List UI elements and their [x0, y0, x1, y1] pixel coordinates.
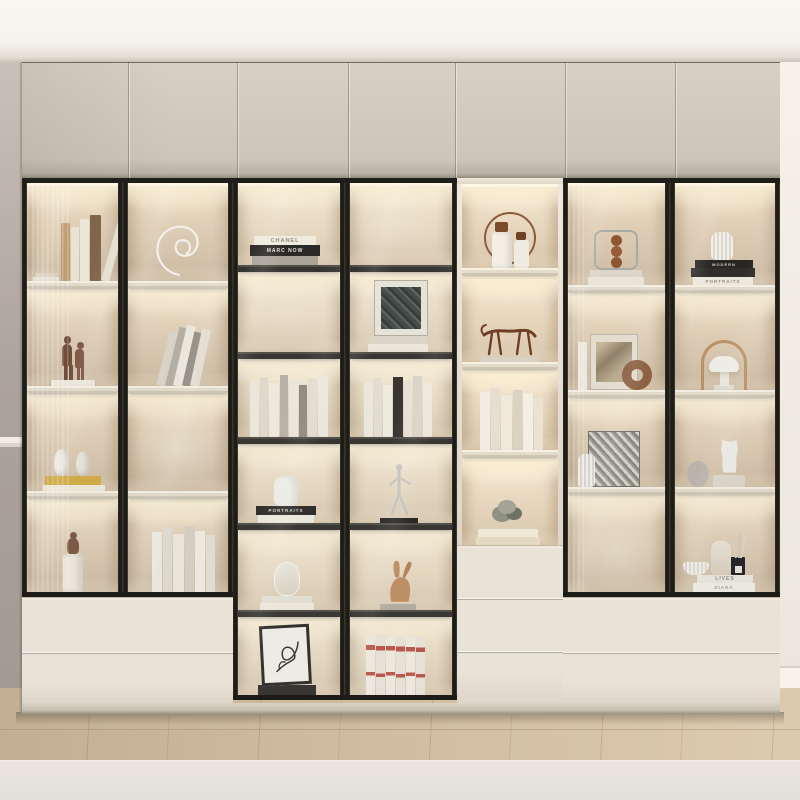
door-stile-left [670, 178, 675, 597]
door-rail-bottom [22, 592, 123, 597]
drawer-unit-right [563, 597, 780, 703]
scene-root: MARC NOWCHANELPORTRAITSPORTRAITSMODERNDI… [0, 0, 800, 800]
column-3: MARC NOWCHANELPORTRAITS [233, 178, 345, 700]
upper-cabinet-seam [348, 63, 350, 178]
led-strip-glow [462, 275, 558, 301]
glass-pane [27, 183, 118, 592]
interior-photo-bookcase-wall: MARC NOWCHANELPORTRAITSPORTRAITSMODERNDI… [0, 0, 800, 800]
door-rail-bottom [123, 592, 233, 597]
drawer-seam [457, 651, 563, 654]
drawer-seam [563, 652, 780, 655]
drawer-unit-left [22, 597, 233, 703]
book [501, 395, 512, 450]
door-rail-top [345, 178, 457, 183]
glass-pane [568, 183, 665, 592]
drawer-seam [22, 652, 233, 655]
open-edge-top [457, 178, 563, 184]
upper-cabinets [22, 62, 780, 178]
door-rail-top [233, 178, 345, 183]
door-stile-left [345, 178, 350, 700]
column-6 [563, 178, 670, 597]
column-5-open-compartment-4 [462, 457, 558, 545]
vase-white [492, 232, 512, 268]
upper-cabinet-seam [565, 63, 567, 178]
glass-pane [128, 183, 228, 592]
book [523, 393, 533, 450]
book [513, 390, 522, 450]
door-stile-right [775, 178, 780, 597]
book-flat [476, 537, 540, 545]
vase-lid-brown [495, 222, 508, 232]
column-4 [345, 178, 457, 700]
book-flat [478, 529, 538, 537]
drawer-seam [457, 598, 563, 601]
column-5-open-shelf [462, 268, 558, 275]
door-rail-top [123, 178, 233, 183]
glass-pane [238, 183, 340, 695]
glass-pane [350, 183, 452, 695]
door-rail-bottom [345, 695, 457, 700]
book [480, 392, 490, 450]
door-rail-top [670, 178, 780, 183]
door-stile-left [563, 178, 568, 597]
upper-cabinet-seam [237, 63, 239, 178]
column-5-open-shelf [462, 362, 558, 369]
door-rail-bottom [233, 695, 345, 700]
door-stile-left [233, 178, 238, 700]
column-7: PORTRAITSMODERNDIANALIVES [670, 178, 780, 597]
upper-cabinet-seam [128, 63, 130, 178]
door-rail-bottom [670, 592, 780, 597]
glass-pane [675, 183, 775, 592]
book-flat [480, 522, 536, 529]
vase-white [514, 240, 529, 268]
column-2 [123, 178, 233, 597]
column-5-open-shelf [462, 450, 558, 457]
cabinet-plinth [22, 703, 780, 714]
column-5-open-compartment-3 [462, 369, 558, 450]
open-edge-left [457, 178, 462, 545]
book [491, 388, 500, 450]
wall-right-baseboard [780, 666, 800, 690]
upper-cabinet-seam [675, 63, 677, 178]
door-rail-top [22, 178, 123, 183]
door-rail-bottom [563, 592, 670, 597]
rug [0, 760, 800, 800]
led-strip-glow [462, 184, 558, 210]
column-1 [22, 178, 123, 597]
floor-plank-seam [0, 729, 800, 730]
wall-right [780, 62, 800, 690]
vase-lid-brown [516, 232, 526, 240]
book [534, 398, 543, 450]
cat-sculpture [478, 323, 540, 357]
led-strip-glow [462, 457, 558, 483]
upper-cabinet-seam [455, 63, 457, 178]
column-5-open-compartment-2 [462, 275, 558, 362]
led-strip-glow [462, 369, 558, 395]
column-5-open [457, 178, 563, 545]
ceiling [0, 0, 800, 62]
door-stile-left [123, 178, 128, 597]
column-5-open-compartment-1 [462, 184, 558, 268]
door-stile-left [22, 178, 27, 597]
door-rail-top [563, 178, 670, 183]
drawer-unit-middle [457, 545, 563, 703]
plant-decor [498, 500, 516, 514]
